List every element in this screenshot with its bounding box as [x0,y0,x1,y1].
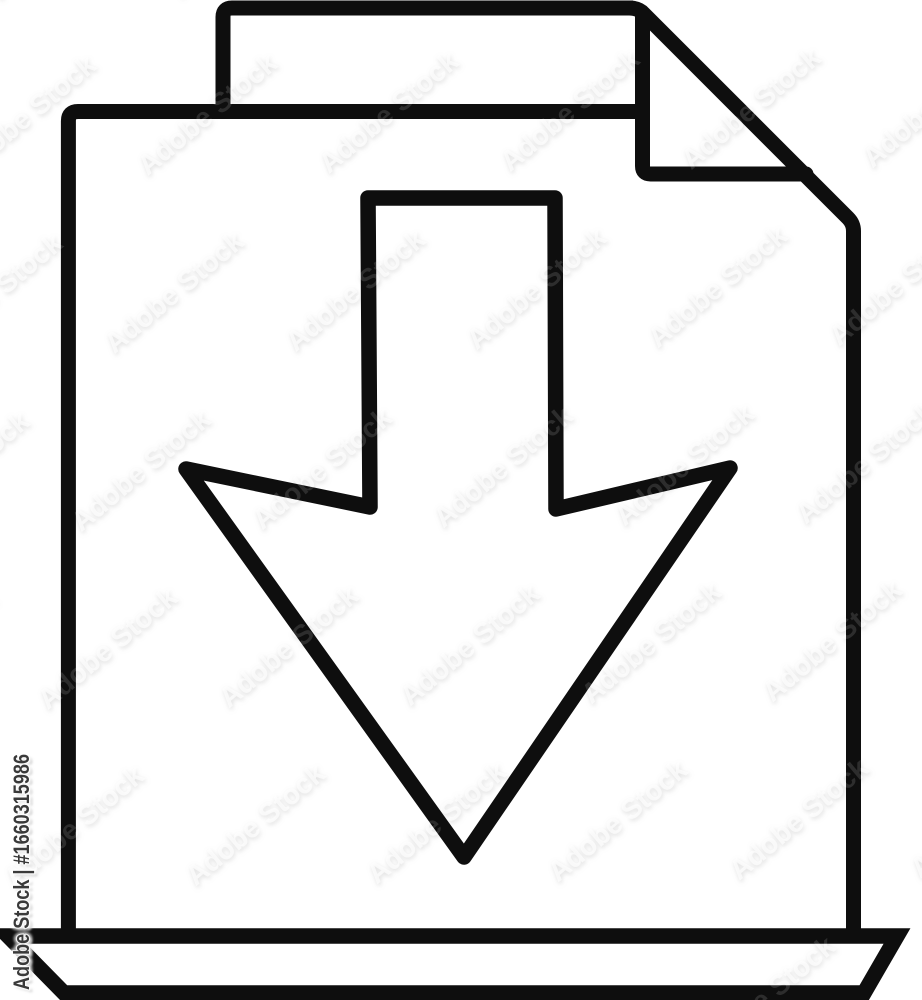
svg-text:Adobe Stock: Adobe Stock [0,583,2,717]
svg-text:Adobe Stock: Adobe Stock [856,39,922,173]
svg-text:Adobe Stock: Adobe Stock [0,583,2,717]
svg-text:Adobe Stock: Adobe Stock [0,405,35,539]
svg-text:Adobe Stock: Adobe Stock [642,219,793,353]
svg-text:Adobe Stock | #1660315986: Adobe Stock | #1660315986 [9,754,34,990]
svg-text:Adobe Stock: Adobe Stock [280,223,431,357]
svg-text:Adobe Stock: Adobe Stock [394,577,545,711]
svg-text:Adobe Stock: Adobe Stock [32,581,183,715]
svg-text:Adobe Stock: Adobe Stock [0,227,69,361]
svg-text:Adobe Stock: Adobe Stock [823,217,922,351]
svg-text:Adobe Stock: Adobe Stock [0,0,135,5]
svg-text:Adobe Stock: Adobe Stock [461,221,612,355]
svg-text:Adobe Stock: Adobe Stock [0,0,135,5]
svg-text:Adobe Stock: Adobe Stock [756,573,907,707]
svg-text:Adobe Stock: Adobe Stock [542,753,693,887]
svg-text:Adobe Stock: Adobe Stock [180,757,331,891]
svg-text:Adobe Stock: Adobe Stock [98,225,249,359]
svg-text:Adobe Stock: Adobe Stock [609,397,760,531]
svg-text:Adobe Stock: Adobe Stock [904,750,922,884]
